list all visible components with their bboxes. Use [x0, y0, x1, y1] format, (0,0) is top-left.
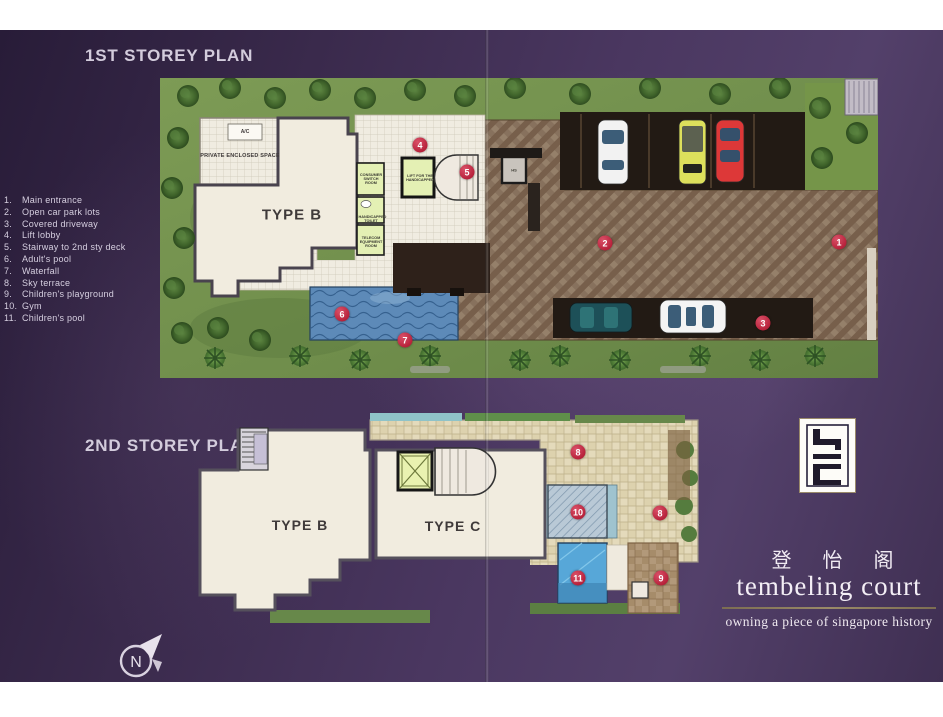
marker-4-lift-lobby: 4	[413, 138, 428, 153]
marker-6-adults-pool: 6	[335, 307, 350, 322]
tc-logo	[799, 418, 856, 493]
legend-item: 7.Waterfall	[4, 266, 126, 278]
marker-5-stairway: 5	[460, 165, 475, 180]
brand-divider	[722, 607, 936, 609]
project-name: tembeling court	[722, 571, 936, 602]
handicapped-lift-label: LIFT FOR THE HANDICAPPED	[406, 174, 434, 182]
handicapped-toilet-label: HANDICAPPED TOILET	[359, 215, 384, 223]
adults-pool	[310, 287, 458, 340]
car-white-bottom	[660, 300, 726, 333]
pes-label: PRIVATE ENCLOSED SPACE	[194, 153, 286, 159]
compass-n: N	[130, 654, 142, 671]
legend-item: 5.Stairway to 2nd sty deck	[4, 242, 126, 254]
marker-7-waterfall: 7	[398, 333, 413, 348]
entrance-gate	[845, 79, 878, 115]
louvre-ledge	[240, 428, 268, 470]
legend-item: 11.Children's pool	[4, 313, 126, 325]
car-yellow-top	[679, 120, 706, 184]
tagline: owning a piece of singapore history	[712, 614, 943, 630]
legend-item: 8.Sky terrace	[4, 278, 126, 290]
type-b-label-2: TYPE B	[272, 517, 329, 533]
chinese-name: 登 怡 阁	[740, 544, 925, 573]
legend-item: 2.Open car park lots	[4, 207, 126, 219]
legend-item: 10.Gym	[4, 301, 126, 313]
car-white-top	[598, 120, 628, 184]
marker-11-childrens-pool: 11	[571, 571, 586, 586]
lift-2	[398, 452, 432, 490]
marker-2-car-park: 2	[598, 236, 613, 251]
purple-sheet: 1ST STOREY PLAN 2ND STOREY PLAN 1.Main e…	[0, 30, 943, 682]
type-c-label: TYPE C	[425, 518, 482, 534]
marker-8-sky-terrace-b: 8	[653, 506, 668, 521]
marker-8-sky-terrace-a: 8	[571, 445, 586, 460]
hs-label: HS	[511, 168, 517, 173]
legend-item: 6.Adult's pool	[4, 254, 126, 266]
legend-list: 1.Main entrance 2.Open car park lots 3.C…	[4, 195, 126, 325]
car-red-top	[716, 120, 744, 182]
marker-1-main-entrance: 1	[832, 235, 847, 250]
first-storey-plan	[160, 78, 878, 378]
type-b-label-1: TYPE B	[262, 207, 322, 224]
marker-3-covered-driveway: 3	[756, 316, 771, 331]
plan1-title: 1ST STOREY PLAN	[85, 46, 253, 66]
ac-label: A/C	[241, 129, 250, 135]
marker-9-playground: 9	[654, 571, 669, 586]
legend-item: 4.Lift lobby	[4, 230, 126, 242]
legend-item: 1.Main entrance	[4, 195, 126, 207]
spiral-stair-2	[435, 448, 495, 495]
brochure-page: 1ST STOREY PLAN 2ND STOREY PLAN 1.Main e…	[0, 0, 943, 717]
legend-item: 9.Children's playground	[4, 289, 126, 301]
consumer-switch-room-label: CONSUMER SWITCH ROOM	[359, 173, 384, 185]
car-teal-bottom	[570, 303, 632, 332]
marker-10-gym: 10	[571, 505, 586, 520]
north-compass-icon: N	[110, 632, 168, 682]
telecom-room-label: TELECOM EQUIPMENT ROOM	[359, 236, 384, 248]
legend-item: 3.Covered driveway	[4, 219, 126, 231]
